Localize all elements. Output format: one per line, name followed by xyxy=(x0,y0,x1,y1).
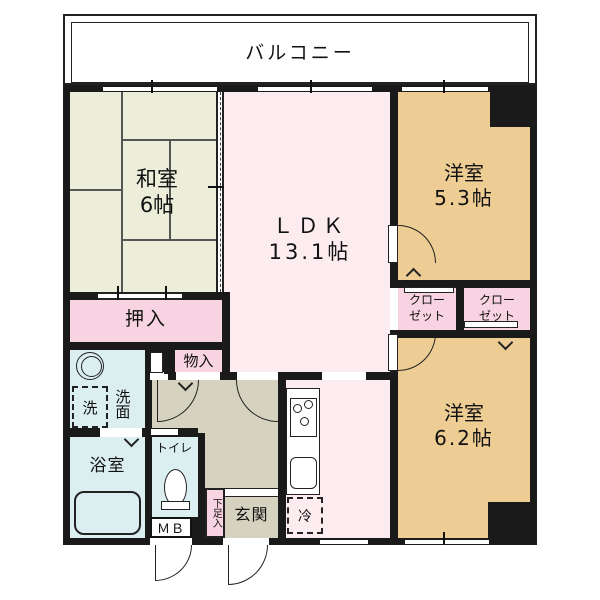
monoire-text: 物入 xyxy=(183,352,213,371)
bathtub-icon xyxy=(74,491,141,535)
closet-right-line2: ゼット xyxy=(479,309,515,325)
pillar xyxy=(488,502,530,538)
doorway xyxy=(151,429,178,435)
window xyxy=(402,87,488,91)
oshiire-label: 押入 xyxy=(70,303,222,337)
yoshitsu-53-name: 洋室 xyxy=(444,161,484,186)
balcony-text: バルコニー xyxy=(245,42,355,66)
window xyxy=(258,87,372,91)
sliding-door-track xyxy=(216,92,224,292)
doorway xyxy=(237,372,278,380)
yoshitsu-62-name: 洋室 xyxy=(444,401,484,426)
toilet-tank-icon xyxy=(161,501,190,510)
tatami-line xyxy=(70,189,121,191)
monoire-label: 物入 xyxy=(175,349,222,373)
shoe-cabinet-text: 下足入 xyxy=(209,498,222,528)
yoshitsu-62-size: 6.2帖 xyxy=(434,426,494,451)
fusuma-tick xyxy=(165,286,167,300)
fridge-space-icon: 冷 xyxy=(287,497,323,534)
window-tick xyxy=(443,80,445,93)
window-tick xyxy=(443,532,445,545)
doorway xyxy=(322,372,366,380)
pillar xyxy=(490,92,530,127)
washitsu-size: 6帖 xyxy=(140,192,174,218)
balcony-label: バルコニー xyxy=(180,40,420,68)
entry-door-arc xyxy=(228,545,268,585)
fusuma-track xyxy=(98,292,182,300)
door-leaf xyxy=(150,352,163,373)
closet-right-label: クロー ゼット xyxy=(464,289,530,329)
ldk-size: 13.1帖 xyxy=(269,239,352,265)
window-tick xyxy=(151,80,153,93)
senmen-text: 洗面 xyxy=(113,389,132,419)
doorway xyxy=(223,538,269,545)
fusuma-tick xyxy=(117,286,119,300)
wall-segment xyxy=(168,350,175,372)
tatami-line xyxy=(121,239,216,241)
doorway xyxy=(150,538,192,545)
genkan-step xyxy=(225,488,278,497)
wall-right xyxy=(530,85,537,545)
doorway xyxy=(150,372,164,380)
entry-door-arc xyxy=(155,545,192,581)
washing-machine-icon: 洗 xyxy=(72,386,108,428)
floor-plan: バルコニー xyxy=(0,0,600,600)
wall-segment xyxy=(278,372,286,538)
closet-left-line1: クロー xyxy=(409,293,445,309)
wall-segment xyxy=(222,292,230,380)
door-leaf xyxy=(388,334,398,371)
wall-segment xyxy=(198,433,205,538)
stove-burner-icon xyxy=(300,417,309,426)
washitsu-name: 和室 xyxy=(136,166,178,192)
oshiire-text: 押入 xyxy=(125,308,167,332)
sink-bowl-inner-icon xyxy=(81,356,102,377)
genkan-label: 玄関 xyxy=(225,499,278,531)
stove-burner-icon xyxy=(293,404,302,413)
door-leaf xyxy=(388,225,398,263)
toilet-text: トイレ xyxy=(156,441,192,456)
yoshitsu-62-label: 洋室 6.2帖 xyxy=(398,388,530,464)
wall-segment xyxy=(70,292,98,300)
senmen-label: 洗面 xyxy=(110,381,134,427)
wall-segment xyxy=(456,288,464,330)
fridge-label: 冷 xyxy=(298,506,312,526)
shoe-cabinet-label: 下足入 xyxy=(206,490,224,536)
sliding-door-center-line xyxy=(220,92,221,292)
ldk-label: ＬＤＫ 13.1帖 xyxy=(234,203,386,275)
window xyxy=(103,87,217,91)
yoshitsu-53-size: 5.3帖 xyxy=(434,186,494,211)
toilet-label: トイレ xyxy=(149,439,199,457)
closet-left-label: クロー ゼット xyxy=(398,289,456,329)
closet-right-line1: クロー xyxy=(479,293,515,309)
washer-label: 洗 xyxy=(82,397,97,418)
meter-box-label: ＭＢ xyxy=(157,518,185,537)
window xyxy=(405,540,489,544)
closet-left-line2: ゼット xyxy=(409,309,445,325)
genkan-text: 玄関 xyxy=(234,505,268,525)
bath-text: 浴室 xyxy=(90,456,126,477)
yoshitsu-53-label: 洋室 5.3帖 xyxy=(398,148,530,224)
window-tick xyxy=(310,80,312,93)
wall-left xyxy=(63,85,70,545)
window xyxy=(320,540,368,544)
stove-burner-icon xyxy=(304,400,313,409)
wall-segment xyxy=(192,517,198,538)
washitsu-label: 和室 6帖 xyxy=(118,160,196,224)
ldk-name: ＬＤＫ xyxy=(273,213,348,239)
kitchen-sink-icon xyxy=(290,457,317,489)
meter-box: ＭＢ xyxy=(150,517,192,538)
sliding-door-tick xyxy=(208,186,224,188)
bath-label: 浴室 xyxy=(70,453,145,481)
